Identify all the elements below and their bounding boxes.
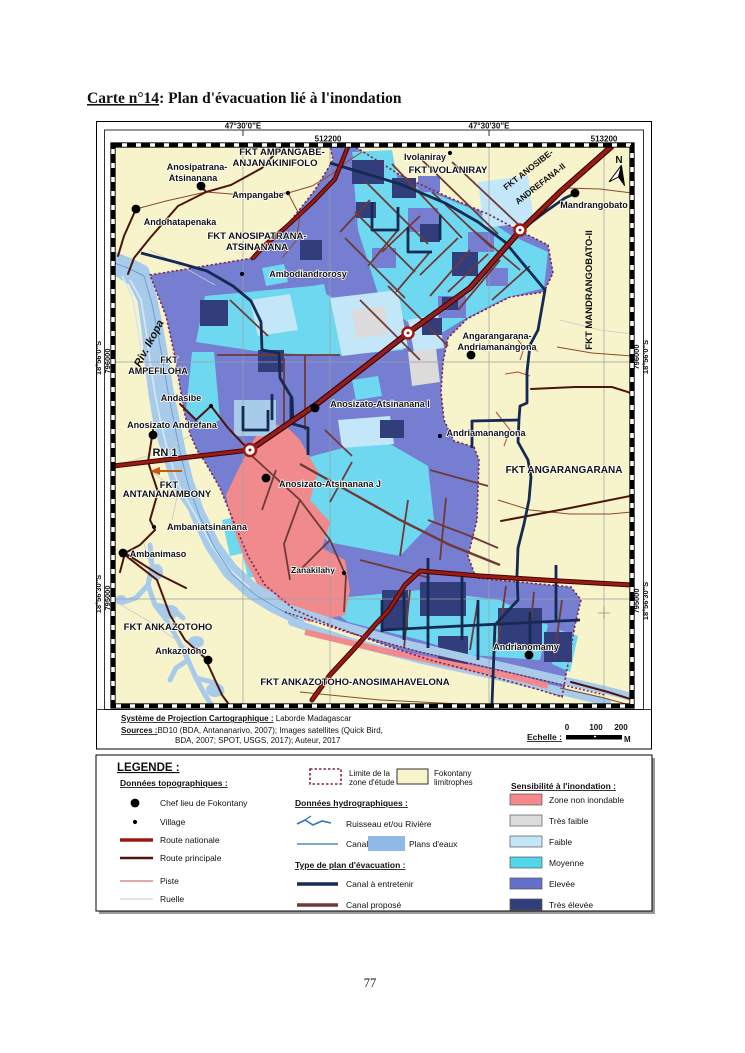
- svg-text:Piste: Piste: [160, 876, 179, 886]
- svg-text:Données hydrographiques :: Données hydrographiques :: [295, 798, 408, 808]
- svg-text:Zone non inondable: Zone non inondable: [549, 795, 624, 805]
- svg-text:Moyenne: Moyenne: [549, 858, 584, 868]
- svg-text:Zanakilahy: Zanakilahy: [291, 565, 335, 575]
- svg-text:LEGENDE :: LEGENDE :: [117, 762, 180, 774]
- svg-text:Angarangarana-: Angarangarana-: [462, 331, 531, 341]
- svg-text:ATSINANANA: ATSINANANA: [226, 242, 288, 253]
- svg-text:Andriamanangona: Andriamanangona: [457, 342, 537, 352]
- svg-text:Canal: Canal: [346, 839, 368, 849]
- svg-text:Limite de la: Limite de la: [349, 769, 390, 778]
- svg-text:18°56'30"S: 18°56'30"S: [94, 575, 103, 613]
- svg-text:513200: 513200: [591, 135, 618, 144]
- svg-text:FKT ANKAZOTOHO-ANOSIMAHAVELONA: FKT ANKAZOTOHO-ANOSIMAHAVELONA: [260, 677, 449, 688]
- svg-text:18°56'30"S: 18°56'30"S: [641, 582, 650, 620]
- svg-text:512200: 512200: [315, 135, 342, 144]
- svg-text:Andriamanangona: Andriamanangona: [446, 428, 526, 438]
- svg-text:FKT: FKT: [160, 355, 178, 365]
- svg-text:Faible: Faible: [549, 837, 572, 847]
- svg-text:Ivolaniray: Ivolaniray: [404, 152, 446, 162]
- svg-text:Très élevée: Très élevée: [549, 900, 593, 910]
- svg-text:Chef lieu de Fokontany: Chef lieu de Fokontany: [160, 798, 248, 808]
- svg-text:Sensibilité à l'inondation :: Sensibilité à l'inondation :: [511, 781, 616, 791]
- svg-text:Carte n°14: Plan d'évacuation: Carte n°14: Plan d'évacuation lié à l'in…: [87, 90, 402, 107]
- svg-text:Canal proposé: Canal proposé: [346, 900, 402, 910]
- svg-text:Anosipatrana-: Anosipatrana-: [167, 162, 228, 172]
- svg-text:Anosizato-Atsinanana J: Anosizato-Atsinanana J: [279, 479, 381, 489]
- svg-text:zone d'étude: zone d'étude: [349, 778, 395, 787]
- svg-text:47°30'0"E: 47°30'0"E: [225, 122, 262, 131]
- svg-text:ANJANAKINIFOLO: ANJANAKINIFOLO: [233, 158, 318, 169]
- svg-text:Elevée: Elevée: [549, 879, 575, 889]
- svg-text:Echelle :: Echelle :: [527, 732, 562, 742]
- svg-text:Type de plan d'évacuation :: Type de plan d'évacuation :: [295, 860, 406, 870]
- svg-text:Ambaniatsinanana: Ambaniatsinanana: [167, 522, 248, 532]
- svg-text:Ampangabe: Ampangabe: [232, 190, 284, 200]
- svg-text:ANTANANAMBONY: ANTANANAMBONY: [123, 489, 212, 500]
- svg-text:FKT ANOSIPATRANA-: FKT ANOSIPATRANA-: [207, 231, 306, 242]
- svg-text:Andasibe: Andasibe: [161, 393, 202, 403]
- svg-text:Sources :BD10 (BDA, Antananari: Sources :BD10 (BDA, Antananarivo, 2007);…: [121, 726, 383, 735]
- svg-text:N: N: [615, 155, 622, 166]
- svg-text:FKT AMPANGABE-: FKT AMPANGABE-: [239, 147, 325, 158]
- svg-text:47°30'30"E: 47°30'30"E: [469, 122, 511, 131]
- svg-text:BDA, 2007; SPOT, USGS, 2017);: BDA, 2007; SPOT, USGS, 2017); Auteur, 20…: [175, 736, 341, 745]
- svg-text:Route nationale: Route nationale: [160, 835, 220, 845]
- svg-text:Atsinanana: Atsinanana: [169, 173, 219, 183]
- svg-text:0: 0: [565, 723, 570, 732]
- svg-text:Données topographiques :: Données topographiques :: [120, 778, 228, 788]
- svg-text:FKT ANKAZOTOHO: FKT ANKAZOTOHO: [124, 622, 213, 633]
- svg-text:Ruisseau et/ou Rivière: Ruisseau et/ou Rivière: [346, 819, 432, 829]
- svg-text:200: 200: [614, 723, 628, 732]
- svg-text:Fokontany: Fokontany: [434, 769, 471, 778]
- svg-text:Anosizato-Atsinanana I: Anosizato-Atsinanana I: [330, 399, 430, 409]
- svg-text:Canal à entretenir: Canal à entretenir: [346, 879, 414, 889]
- svg-text:Plans d'eaux: Plans d'eaux: [409, 839, 458, 849]
- svg-text:M: M: [624, 735, 631, 744]
- svg-text:FKT IVOLANIRAY: FKT IVOLANIRAY: [409, 165, 488, 176]
- svg-text:limitrophes: limitrophes: [434, 778, 473, 787]
- svg-text:18°56'0"S: 18°56'0"S: [94, 341, 103, 375]
- svg-text:Andohatapenaka: Andohatapenaka: [144, 217, 218, 227]
- svg-text:Route principale: Route principale: [160, 853, 222, 863]
- svg-text:Mandrangobato: Mandrangobato: [560, 200, 628, 210]
- svg-text:Anosizato Andrefana: Anosizato Andrefana: [127, 420, 218, 430]
- svg-text:77: 77: [364, 976, 377, 990]
- svg-text:100: 100: [589, 723, 603, 732]
- svg-text:FKT ANGARANGARANA: FKT ANGARANGARANA: [506, 465, 623, 476]
- svg-text:Ankazotoho: Ankazotoho: [155, 646, 207, 656]
- svg-text:Très faible: Très faible: [549, 816, 589, 826]
- svg-text:18°56'0"S: 18°56'0"S: [641, 340, 650, 374]
- svg-text:AMPEFILOHA: AMPEFILOHA: [128, 366, 188, 376]
- svg-text:Ambanimaso: Ambanimaso: [130, 549, 187, 559]
- svg-text:RN 1: RN 1: [152, 447, 177, 459]
- svg-text:Andrianomamy: Andrianomamy: [493, 642, 559, 652]
- svg-text:Ruelle: Ruelle: [160, 894, 184, 904]
- svg-text:Système de Projection Cartogra: Système de Projection Cartographique : L…: [121, 714, 352, 723]
- svg-text:Village: Village: [160, 817, 186, 827]
- svg-text:FKT MANDRANGOBATO-II: FKT MANDRANGOBATO-II: [584, 230, 595, 349]
- svg-text:Ambodiandrorosy: Ambodiandrorosy: [269, 269, 347, 279]
